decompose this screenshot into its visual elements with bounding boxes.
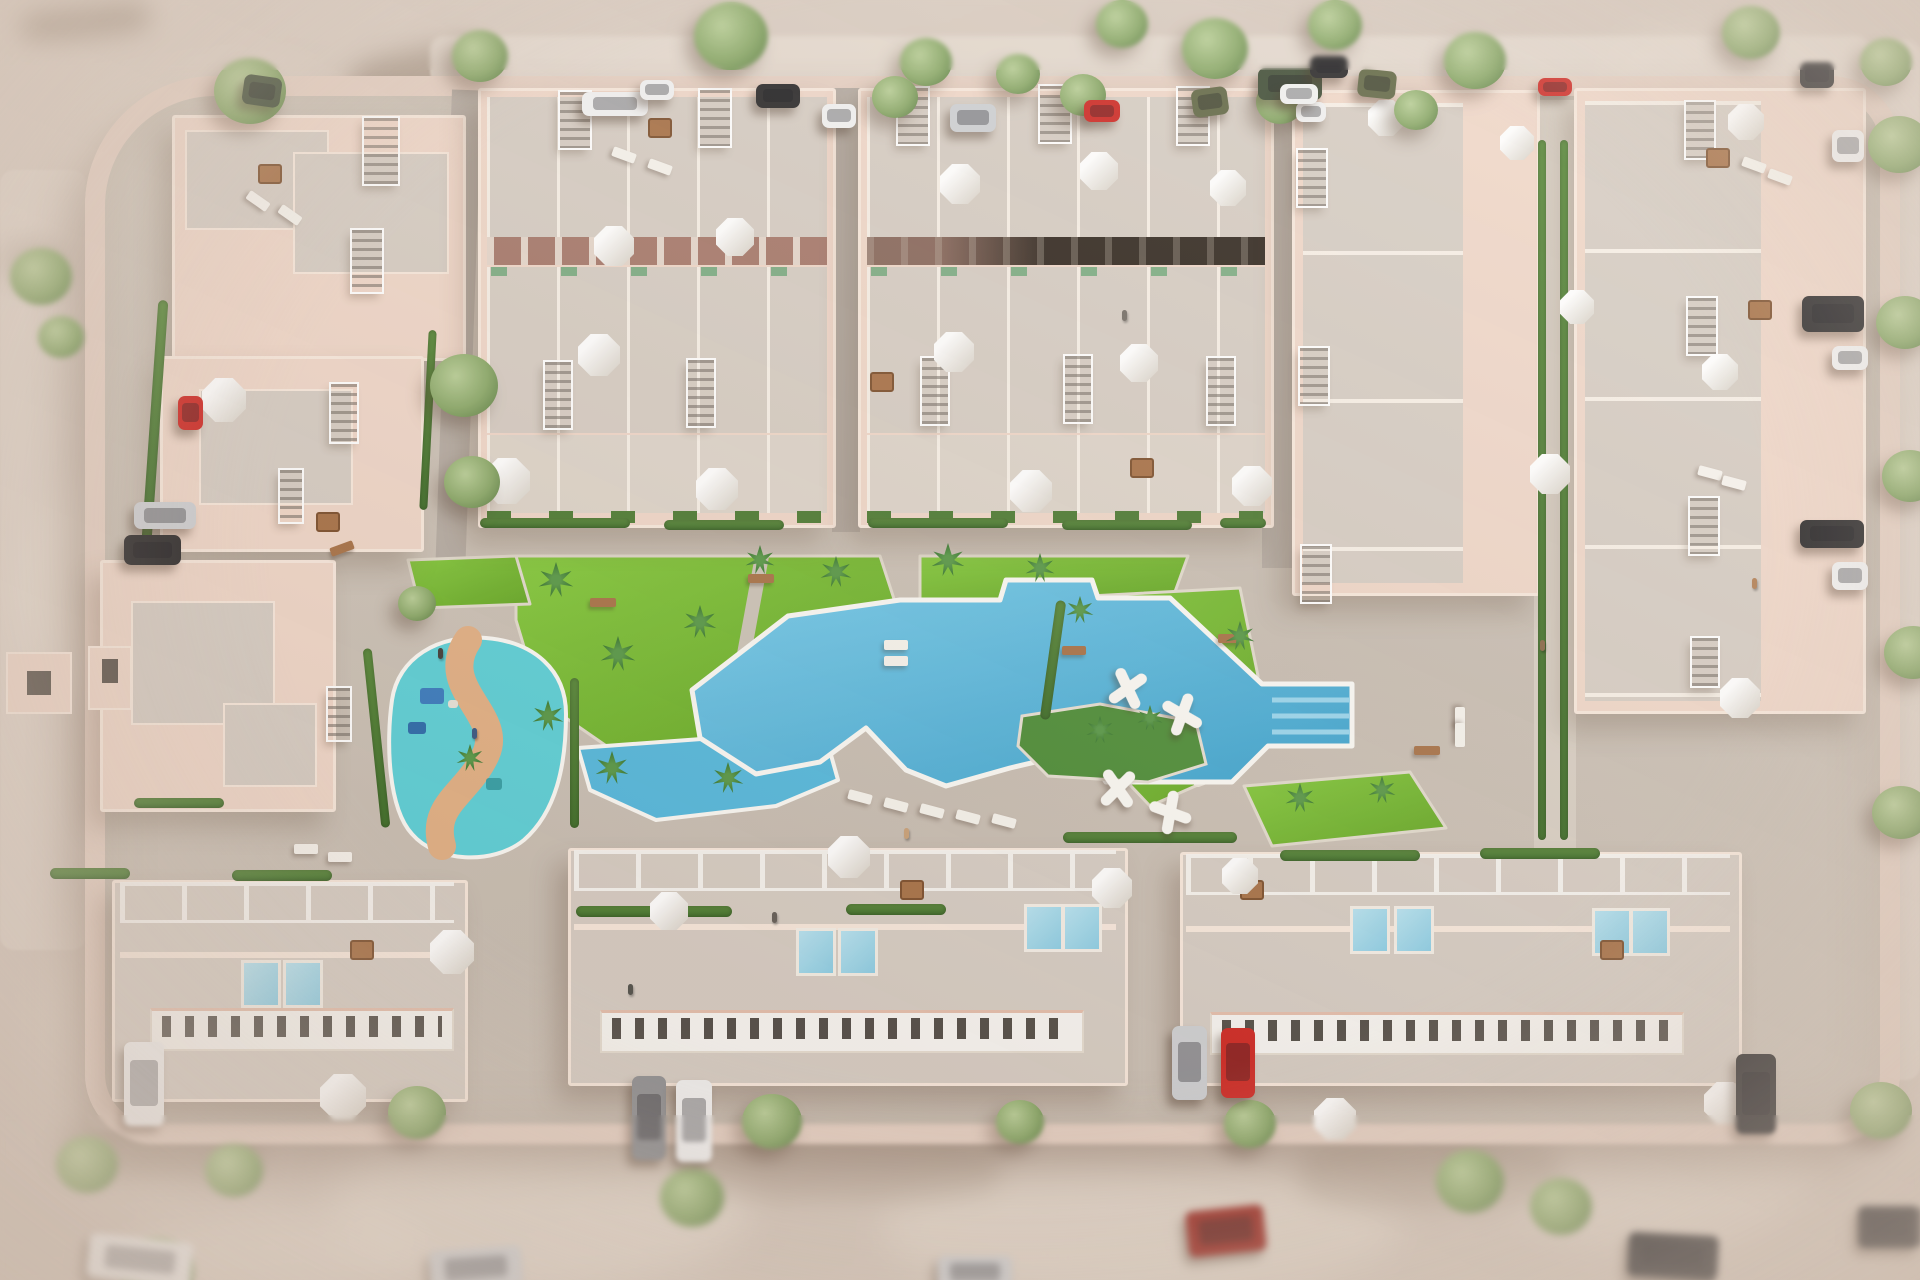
parked-car [1858, 1206, 1920, 1248]
sun-lounger [294, 844, 318, 854]
patio-umbrella [1702, 354, 1738, 390]
patio-umbrella [650, 892, 688, 930]
villa-terraces [1585, 101, 1761, 701]
wooden-table [1130, 458, 1154, 478]
parked-car [1084, 100, 1120, 122]
tree [742, 1094, 802, 1149]
villa-terraces [1303, 103, 1463, 583]
parked-car [241, 74, 283, 109]
rooftop-plunge-pool [1024, 904, 1064, 952]
parked-car [1627, 1232, 1719, 1280]
roof-terrace [223, 703, 317, 787]
tree [1394, 90, 1438, 130]
window-row [162, 1016, 442, 1037]
parked-car [632, 1076, 666, 1160]
hedge-row [1280, 850, 1420, 861]
person-figure [472, 728, 477, 739]
road-between-blocks-ab [832, 88, 860, 532]
street-facade-windows [150, 1008, 454, 1051]
roof-terrace-row [487, 267, 827, 433]
tree [38, 316, 84, 358]
wooden-table [648, 118, 672, 138]
parked-car [1296, 102, 1326, 122]
stair-grate [1208, 358, 1234, 424]
rooftop-pergola-row [120, 882, 454, 923]
apartment-block-left-middle [160, 356, 424, 552]
parked-car [1800, 62, 1834, 88]
person-figure [1752, 578, 1757, 589]
hedge-row [846, 904, 946, 915]
gatehouse [88, 646, 132, 710]
villa-column-center-right [1292, 90, 1540, 596]
sun-lounger [884, 640, 908, 650]
bench [1062, 646, 1086, 655]
rooftop-plunge-pool [838, 928, 878, 976]
patio-umbrella [1720, 678, 1760, 718]
hedge-row [570, 678, 579, 828]
apartment-block-left-top [172, 115, 466, 361]
parked-car [950, 104, 996, 132]
tree [660, 1168, 724, 1227]
rooftop-pergola-row [1186, 854, 1730, 895]
rooftop-plunge-pool [241, 960, 281, 1008]
parked-car [756, 84, 800, 108]
stair-grate [688, 360, 714, 426]
patio-umbrella [1092, 868, 1132, 908]
parked-car [676, 1080, 712, 1162]
stair-grate [331, 384, 357, 442]
bench [590, 598, 616, 607]
stair-grate [1300, 348, 1328, 404]
tree [996, 54, 1040, 94]
patio-umbrella [594, 226, 634, 266]
patio-umbrella [1222, 858, 1258, 894]
patio-umbrella [1530, 454, 1570, 494]
tree [444, 456, 500, 508]
sun-lounger [1455, 723, 1465, 747]
sun-lounger [328, 852, 352, 862]
person-figure [904, 828, 909, 839]
parked-car [124, 1042, 164, 1126]
tree [1860, 38, 1912, 86]
rooftop-plunge-pool [1394, 906, 1434, 954]
gate-door [27, 671, 52, 694]
parked-car [1832, 346, 1868, 370]
parked-car [1538, 78, 1572, 96]
stair-grate [1065, 356, 1091, 422]
rooftop-plunge-pool [1630, 908, 1670, 956]
playground-structure [1092, 762, 1144, 814]
parked-car [1190, 86, 1230, 119]
tree [1224, 1100, 1276, 1148]
hedge-row [1480, 848, 1600, 859]
hedge-row [1063, 832, 1237, 843]
stair-grate [1692, 638, 1718, 686]
stair-grate [1302, 546, 1330, 602]
parked-car [1736, 1054, 1776, 1134]
tree [996, 1100, 1044, 1144]
tree [430, 354, 498, 417]
stair-grate [364, 118, 398, 184]
stair-grate [1688, 298, 1716, 354]
hedge-row [1062, 520, 1192, 530]
patio-row [487, 435, 827, 513]
parked-car [1357, 68, 1398, 100]
facade-band [487, 237, 827, 265]
rooftop-plunge-pool [1062, 904, 1102, 952]
wooden-table [316, 512, 340, 532]
wooden-table [350, 940, 374, 960]
patio-umbrella [1232, 466, 1272, 506]
parked-car [134, 502, 196, 529]
ground-shadow-patch [19, 0, 152, 45]
bench [1414, 746, 1440, 755]
rooftop-plunge-pool [283, 960, 323, 1008]
stair-grate [1690, 498, 1718, 554]
tree [872, 76, 918, 118]
person-figure [628, 984, 633, 995]
parked-car [1185, 1204, 1267, 1258]
street-facade-windows [1210, 1012, 1684, 1055]
townhouse-block-a [478, 88, 836, 528]
gatehouse [6, 652, 72, 714]
wooden-table [870, 372, 894, 392]
hedge-row [232, 870, 332, 881]
patio-umbrella [940, 164, 980, 204]
stair-grate [328, 688, 350, 740]
parked-car [938, 1256, 1012, 1280]
stair-grate [352, 230, 382, 292]
ground-shadow-patch [1300, 1140, 1560, 1210]
hedge-row [134, 798, 224, 808]
wooden-table [1600, 940, 1624, 960]
tree [1444, 32, 1506, 89]
roof-parapet-line [120, 952, 454, 958]
green-awnings-row [871, 267, 1261, 276]
parked-car [124, 535, 181, 565]
parked-car [1280, 84, 1318, 104]
hedge-row [480, 518, 630, 528]
window-row [1222, 1020, 1672, 1041]
person-figure [438, 648, 443, 659]
parked-car [1172, 1026, 1207, 1100]
window-row [612, 1018, 1072, 1039]
parked-car [1221, 1028, 1255, 1098]
patio-umbrella [934, 332, 974, 372]
patio-umbrella [202, 378, 246, 422]
bench [748, 574, 774, 583]
person-figure [1122, 310, 1127, 321]
hedge-row [1220, 518, 1266, 528]
green-awnings-row [491, 267, 823, 276]
patio-umbrella [1210, 170, 1246, 206]
parked-car [1832, 562, 1868, 590]
parked-car [640, 80, 674, 100]
tree [1530, 1178, 1592, 1235]
parked-car [178, 396, 203, 430]
hedge-row [50, 868, 130, 879]
tree [10, 248, 72, 305]
tree [1722, 6, 1780, 59]
stair-grate [700, 90, 730, 146]
tree [398, 586, 436, 621]
wooden-table [900, 880, 924, 900]
villa-column-far-right [1574, 88, 1866, 714]
wooden-table [1706, 148, 1730, 168]
stair-grate [1298, 150, 1326, 206]
parked-car [582, 92, 648, 116]
apartment-block-left-bottom [100, 560, 336, 812]
parked-car [1802, 296, 1864, 332]
gate-door [102, 659, 118, 683]
tree [1436, 1150, 1504, 1213]
facade-band [867, 237, 1265, 265]
tree [1182, 18, 1248, 79]
wooden-table [1748, 300, 1772, 320]
person-figure [772, 912, 777, 923]
patio-umbrella [1728, 104, 1764, 140]
rooftop-plunge-pool [796, 928, 836, 976]
tree [388, 1086, 446, 1139]
patio-row [867, 435, 1265, 513]
stair-grate [545, 362, 571, 428]
sun-lounger [884, 656, 908, 666]
stair-grate [280, 470, 302, 522]
townhouse-block-b [858, 88, 1274, 528]
parked-car [1800, 520, 1864, 548]
parked-car [429, 1245, 524, 1280]
patio-umbrella [1314, 1098, 1356, 1140]
person-figure [1540, 640, 1545, 651]
tree [1308, 0, 1362, 50]
tree [205, 1144, 263, 1197]
rooftop-plunge-pool [1350, 906, 1390, 954]
hedge-row [868, 518, 1008, 528]
hedge-row [664, 520, 784, 530]
tree [1096, 0, 1148, 48]
aerial-render-scene [0, 0, 1920, 1280]
parked-car [1832, 130, 1864, 162]
tree [1850, 1082, 1912, 1139]
patio-umbrella [716, 218, 754, 256]
wooden-table [258, 164, 282, 184]
patio-umbrella [320, 1074, 366, 1120]
tree [56, 1136, 118, 1193]
tree [452, 30, 508, 82]
parked-car [822, 104, 856, 128]
parked-car [1310, 56, 1348, 78]
street-facade-windows [600, 1010, 1084, 1053]
tree [694, 2, 768, 70]
